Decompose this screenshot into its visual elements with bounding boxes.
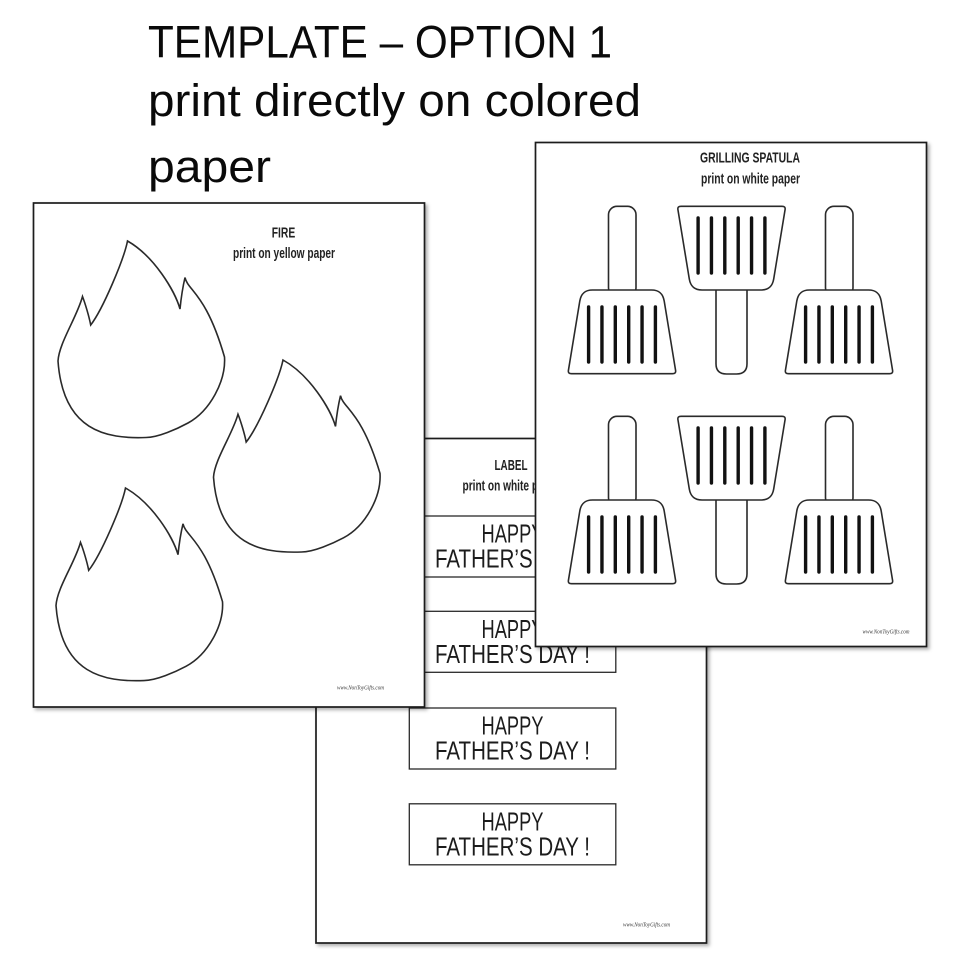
svg-text:www.NonToyGifts.com: www.NonToyGifts.com (863, 629, 910, 636)
svg-text:www.NonToyGifts.com: www.NonToyGifts.com (623, 922, 670, 929)
svg-text:FATHER’S DAY !: FATHER’S DAY ! (435, 831, 590, 861)
svg-text:TEMPLATE – OPTION 1: TEMPLATE – OPTION 1 (148, 17, 612, 68)
svg-text:FIRE: FIRE (272, 225, 296, 242)
svg-text:www.NonToyGifts.com: www.NonToyGifts.com (337, 685, 384, 692)
svg-text:LABEL: LABEL (495, 457, 528, 474)
svg-text:print on white paper: print on white paper (701, 171, 800, 188)
svg-text:paper: paper (148, 141, 271, 192)
svg-text:GRILLING SPATULA: GRILLING SPATULA (700, 150, 800, 167)
svg-text:FATHER’S DAY !: FATHER’S DAY ! (435, 736, 590, 766)
svg-text:print on yellow paper: print on yellow paper (233, 245, 335, 262)
svg-text:print directly on colored: print directly on colored (148, 75, 641, 126)
